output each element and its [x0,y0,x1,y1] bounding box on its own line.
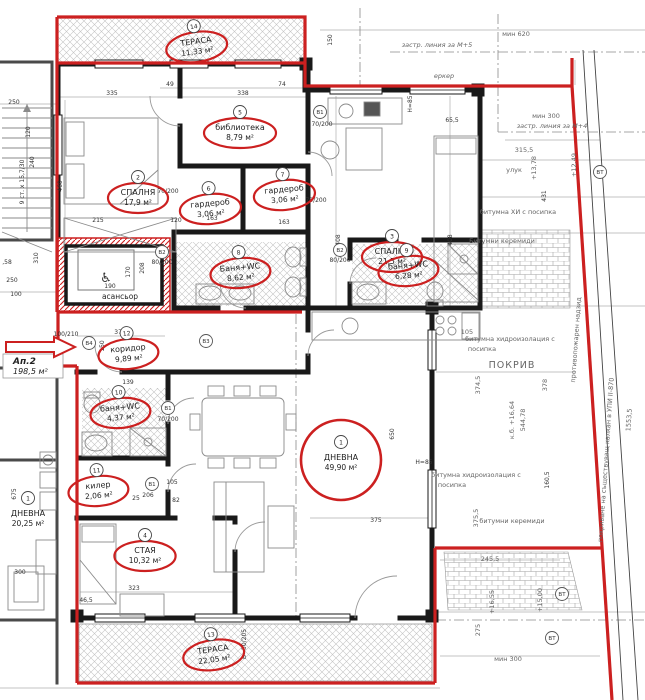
dimension-text: 74 [278,81,286,88]
dimension-text: 250 [6,277,18,284]
dimension-text: 170 [125,266,132,278]
room-area: 9,89 м² [115,353,143,364]
door-tag: ВТ [556,588,569,601]
dimension-text: 65,5 [445,117,459,124]
room-number: 3 [390,234,394,241]
annotation-text: мин 300 [532,112,560,120]
dimension-text: H=85 [407,95,414,112]
entrance-group: Ап.2 198,5 м² [3,337,75,378]
room-area: 49,90 м² [325,463,358,472]
annotation-text: 245,5 [481,555,500,563]
room-name: СТАЯ [134,546,156,555]
room-number: 11 [93,467,101,475]
room-number: 7 [280,171,285,178]
dimension-text: 240 [29,156,36,168]
dimension-text: 46,5 [79,597,93,604]
room-area: 3,06 м² [197,208,225,219]
dimension-text: 206 [142,492,154,499]
annotation-text: +16,55 [488,590,496,614]
dimension-text: 120 [25,126,32,138]
annotation-text: битумна хидроизолация с [431,471,521,479]
annotation-text: еркер [434,72,454,80]
annotation-text: застр. линия за М+5 [402,41,473,49]
hatch-terrace-bottom [79,624,432,681]
room-label: асансьор [102,292,138,301]
annotation-text: битумна хидроизолация с [465,335,555,343]
room-number: 10 [115,389,123,397]
annotation-text: битумни керемиди [479,517,544,525]
dimension-text: 82 [172,497,180,504]
dimension-text: 120 [170,217,182,224]
door-tag: ВТ [546,632,559,645]
apartment-area: 198,5 м² [13,367,48,376]
annotation-text: к.б. +16,64 [508,401,516,439]
dimension-text: 300 [14,569,26,576]
annotation-text: посипка [438,481,466,489]
room-number: 1 [339,440,343,447]
dimension-text: 160,5 [544,471,551,488]
room-name: библиотека [215,123,265,132]
floor-plan-canvas: ♿ [0,0,645,700]
dimension-text: 460 [57,180,64,192]
door-tag: В3 [200,335,213,348]
room-number: 4 [143,533,147,540]
dimension-text: 100 [10,291,22,298]
dimension-text: 80/200 [151,259,172,266]
annotation-text: мин 620 [502,30,530,38]
annotation-text: +13,78 [530,156,538,180]
annotation-text: покриване на съществуващ калкан в УПИ II… [596,377,615,542]
room-name: СПАЛНЯ [121,188,156,197]
annotation-text: застр. линия за М+4 [517,122,588,130]
dimension-text: 100/210 [54,331,79,338]
room-number: 2 [136,175,140,182]
annotation-text: 275 [474,624,482,636]
column-marker [428,304,436,312]
annotation-text: Битумни керемиди [469,237,535,245]
dimension-text: 208 [139,262,146,274]
door-tag: В2 [156,246,169,259]
room-number: 13 [207,631,216,639]
svg-text:В1: В1 [164,406,171,412]
room-name: ДНЕВНА [11,509,46,518]
dimension-text: 105 [166,479,178,486]
dimension-text: 70/200 [311,121,332,128]
svg-text:ВТ: ВТ [548,636,556,642]
dimension-text: ,58 [2,259,12,266]
door-tag: В1 [162,402,175,415]
room-number: 9 [404,247,409,254]
svg-text:ВТ: ВТ [558,592,566,598]
annotation-text: противопожарен надзид [569,296,583,382]
room-label: 4СТАЯ10,32 м² [114,529,175,572]
annotation-text: 544,78 [519,409,527,432]
dimension-text: 335 [106,90,118,97]
room-area: 20,25 м² [12,519,45,528]
dimension-text: H=85 [415,459,432,466]
room-name: ДНЕВНА [324,453,359,462]
annotation-text: мин 300 [494,655,522,663]
annotation-text: 1553,5 [624,408,634,431]
dimension-text: 323 [128,585,140,592]
dimension-text: 190 [104,283,116,290]
room-number: 5 [238,110,242,117]
room-number: 8 [236,249,241,256]
room-number: 6 [206,185,211,192]
room-name: асансьор [102,292,138,301]
door-tag: В1 [314,106,327,119]
room-area: 17,9 м² [124,198,152,207]
dimension-text: 310 [33,252,40,264]
door-tag: В1 [146,478,159,491]
annotation-text: 315,5 [515,146,534,154]
svg-text:В2: В2 [336,248,343,254]
annotation-text: 374,5 [474,376,482,395]
annotation-text: +15,00 [536,588,544,612]
dimension-text: 431 [541,190,548,202]
dimension-text: 25 [132,495,140,502]
dimension-text: 163 [278,219,290,226]
dimension-text: 338 [237,90,249,97]
window [300,614,350,622]
dimension-text: 80/200 [329,257,350,264]
svg-text:В3: В3 [202,339,210,345]
annotation-text: ПОКРИВ [489,360,536,371]
annotation-text: посипка [468,345,496,353]
dimension-text: 9 ст. х 15,7/30 [19,159,26,204]
annotation-text: +12,49 [570,153,578,177]
room-number: 12 [123,330,131,338]
door-tag: В2 [334,244,347,257]
dimension-text: 49 [166,81,174,88]
annotation-text: 378 [541,379,549,391]
svg-text:В2: В2 [158,250,165,256]
room-area: 3,06 м² [271,194,299,205]
dimension-text: 375 [370,517,382,524]
staircase [2,104,52,252]
room-number: 1 [26,496,30,503]
apartment-label: Ап.2 [12,357,36,367]
dimension-text: 408 [447,234,454,246]
svg-text:В1: В1 [316,110,323,116]
regulation-lines [296,8,645,620]
roof-shingles-bottom [444,552,582,610]
room-number: 14 [190,23,199,31]
dimension-text: 139 [122,379,134,386]
window [195,614,245,622]
annotation-text: битумна ХИ с посипка [480,208,556,216]
svg-text:В4: В4 [85,341,93,347]
dimension-text: 70/200 [157,416,178,423]
room-area: 8,79 м² [226,133,254,142]
door-tag: В4 [83,337,96,350]
svg-text:ВТ: ВТ [596,170,604,176]
room-label: 1ДНЕВНА49,90 м² [301,420,381,500]
dimension-text: 650 [389,428,396,440]
annotation-text: улук [506,166,522,174]
dimension-text: 150 [327,34,334,46]
window [428,330,436,370]
dimension-text: 215 [92,217,104,224]
floor-plan-page: ♿ [0,0,645,700]
room-area: 10,32 м² [129,556,162,565]
door-tag: ВТ [594,166,607,179]
dimension-text: 675 [11,488,18,500]
room-label: 5библиотека8,79 м² [204,106,276,149]
dimension-text: 250 [8,99,20,106]
svg-text:В1: В1 [148,482,155,488]
room-area: 2,06 м² [85,490,113,501]
